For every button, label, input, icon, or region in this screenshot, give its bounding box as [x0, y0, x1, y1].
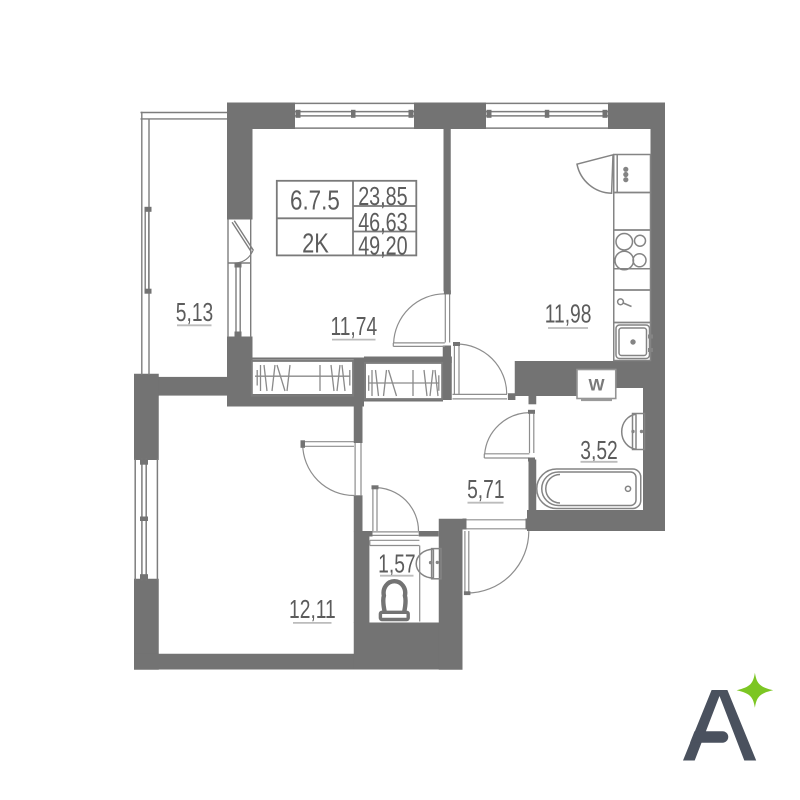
svg-text:49,20: 49,20 [358, 231, 407, 260]
svg-text:3,52: 3,52 [580, 435, 617, 465]
svg-text:W: W [588, 376, 605, 395]
svg-text:11,74: 11,74 [330, 311, 377, 341]
svg-text:6.7.5: 6.7.5 [290, 185, 340, 216]
svg-text:2K: 2K [302, 228, 329, 259]
svg-text:12,11: 12,11 [289, 594, 336, 624]
svg-text:5,13: 5,13 [176, 297, 213, 327]
svg-text:1,57: 1,57 [378, 549, 415, 579]
svg-text:23,85: 23,85 [358, 181, 407, 210]
svg-text:11,98: 11,98 [545, 299, 592, 329]
svg-text:5,71: 5,71 [467, 474, 504, 504]
